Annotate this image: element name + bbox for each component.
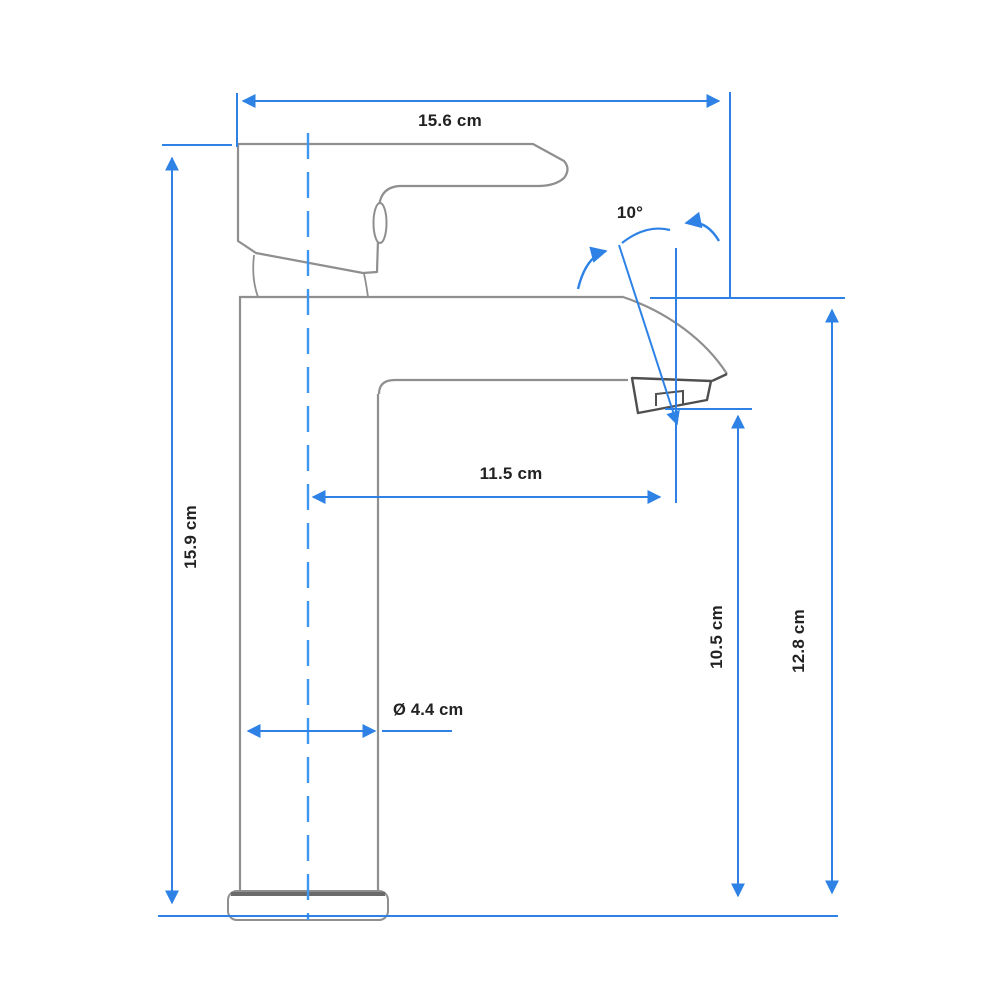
- label-outlet-height: 10.5 cm: [707, 605, 726, 669]
- label-spout-height: 12.8 cm: [789, 609, 808, 673]
- handle-pivot-oval: [374, 203, 387, 243]
- faucet-outline: [228, 144, 727, 920]
- rotation-arrow-left: [578, 251, 606, 289]
- neck-right-curve: [364, 274, 368, 297]
- label-base-diameter: Ø 4.4 cm: [393, 701, 463, 719]
- rotation-arrow-right: [686, 222, 719, 241]
- label-spout-reach: 11.5 cm: [480, 464, 543, 483]
- faucet-technical-drawing: 15.6 cm 15.9 cm 11.5 cm Ø 4.4 cm 10.5 cm…: [0, 0, 1000, 1000]
- label-handle-angle: 10°: [617, 203, 643, 222]
- rotation-arc-middle: [622, 229, 670, 243]
- label-width-top: 15.6 cm: [418, 111, 482, 130]
- faucet-handle: [238, 144, 568, 273]
- label-height-left: 15.9 cm: [181, 505, 200, 569]
- drawing-canvas: 15.6 cm 15.9 cm 11.5 cm Ø 4.4 cm 10.5 cm…: [0, 0, 1000, 1000]
- neck-left-curve: [253, 255, 258, 297]
